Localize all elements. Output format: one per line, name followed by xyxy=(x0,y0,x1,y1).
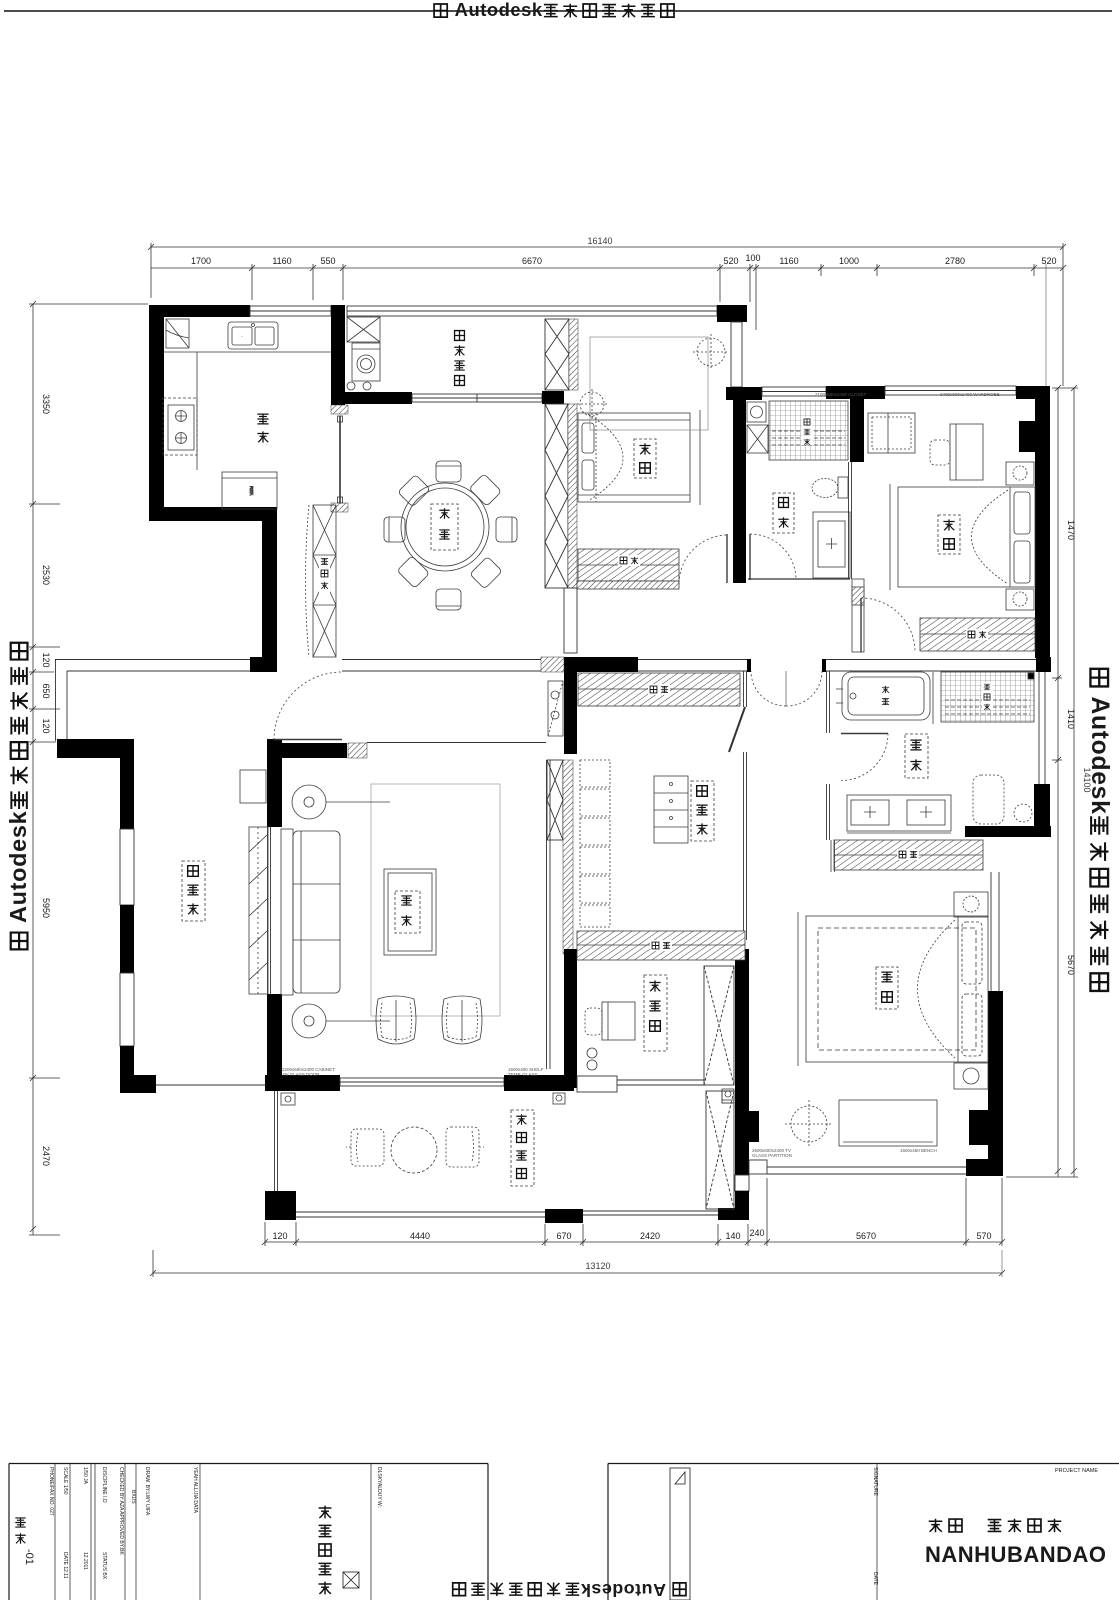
svg-text:12.2011: 12.2011 xyxy=(82,1552,88,1570)
svg-text:520: 520 xyxy=(723,256,738,266)
svg-text:3350: 3350 xyxy=(41,394,51,414)
svg-text:1/50 JA: 1/50 JA xyxy=(82,1467,88,1485)
svg-text:4440: 4440 xyxy=(410,1231,430,1241)
svg-text:DISCIPLINE I.D: DISCIPLINE I.D xyxy=(101,1467,107,1503)
svg-text:1160: 1160 xyxy=(272,256,291,266)
svg-text:240: 240 xyxy=(749,1228,764,1238)
svg-text:650: 650 xyxy=(41,683,51,698)
svg-text:1410: 1410 xyxy=(1066,709,1076,729)
svg-text:5950: 5950 xyxy=(41,898,51,918)
svg-text:1470: 1470 xyxy=(1066,520,1076,540)
svg-text:5670: 5670 xyxy=(1066,955,1076,975)
svg-text:REF.: REF. xyxy=(249,486,254,496)
svg-text:120: 120 xyxy=(41,652,51,667)
svg-text:570: 570 xyxy=(976,1231,991,1241)
svg-text:GLASS PARTITION: GLASS PARTITION xyxy=(752,1153,792,1158)
svg-text:STATUS BX: STATUS BX xyxy=(101,1552,107,1580)
svg-text:2530: 2530 xyxy=(41,565,51,585)
svg-text:2420: 2420 xyxy=(640,1231,660,1241)
svg-text:DRAW. BY:LWY UIFA: DRAW. BY:LWY UIFA xyxy=(144,1467,150,1516)
svg-text:-01: -01 xyxy=(23,1549,35,1565)
svg-text:1160: 1160 xyxy=(779,256,798,266)
svg-text:140: 140 xyxy=(725,1231,740,1241)
svg-text:DATE 12.11: DATE 12.11 xyxy=(62,1552,68,1579)
svg-text:13120: 13120 xyxy=(585,1261,610,1271)
svg-text:NANHUBANDAO: NANHUBANDAO xyxy=(925,1542,1107,1567)
svg-text:PHONE/FAX NO. 027: PHONE/FAX NO. 027 xyxy=(48,1467,54,1516)
svg-text:1000: 1000 xyxy=(839,256,859,266)
svg-text:W/ GLASS DOOR: W/ GLASS DOOR xyxy=(283,1072,320,1077)
svg-text:1700: 1700 xyxy=(191,256,211,266)
svg-text:YEAH ALL/JIA DATA: YEAH ALL/JIA DATA xyxy=(192,1467,198,1514)
svg-text:2400x600x2400 WARDROBE: 2400x600x2400 WARDROBE xyxy=(940,392,1000,397)
svg-text:14100: 14100 xyxy=(1082,767,1092,792)
svg-text:SIGNATURE: SIGNATURE xyxy=(872,1467,878,1496)
svg-text:CHECKED BY:AZA APPROVED BY:BK: CHECKED BY:AZA APPROVED BY:BK xyxy=(118,1467,124,1555)
svg-text:120: 120 xyxy=(41,718,51,733)
svg-text:16140: 16140 xyxy=(587,236,612,246)
svg-text:SCALE 1/50: SCALE 1/50 xyxy=(62,1467,68,1495)
svg-text:100: 100 xyxy=(745,253,760,263)
svg-text:670: 670 xyxy=(556,1231,571,1241)
svg-text:2100x600x2400 CLOSET: 2100x600x2400 CLOSET xyxy=(815,392,867,397)
svg-text:550: 550 xyxy=(320,256,335,266)
svg-text:5670: 5670 xyxy=(856,1231,876,1241)
svg-text:1600x450 BENCH: 1600x450 BENCH xyxy=(900,1148,937,1153)
svg-text:6670: 6670 xyxy=(522,256,542,266)
svg-text:PROJECT NAME: PROJECT NAME xyxy=(1055,1468,1098,1474)
svg-text:520: 520 xyxy=(1041,256,1056,266)
svg-text:TEMP. GLASS: TEMP. GLASS xyxy=(508,1072,537,1077)
svg-text:2470: 2470 xyxy=(41,1146,51,1166)
svg-text:DLSKYALDUY W.:: DLSKYALDUY W.: xyxy=(376,1467,382,1508)
svg-text:2780: 2780 xyxy=(945,256,965,266)
svg-text:BXUS: BXUS xyxy=(130,1490,136,1504)
svg-text:DATE: DATE xyxy=(872,1572,878,1586)
svg-text:120: 120 xyxy=(272,1231,287,1241)
